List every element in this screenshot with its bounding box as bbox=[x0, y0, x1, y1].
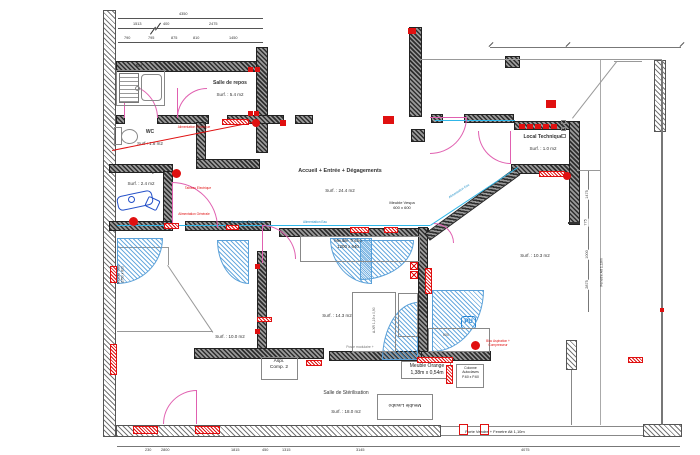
dimension-label: 790 bbox=[123, 36, 131, 41]
power-outlet-marker bbox=[248, 67, 253, 72]
drawing-line bbox=[600, 60, 601, 425]
electrical-note: Alimentation Générale bbox=[172, 212, 216, 216]
wall bbox=[412, 130, 424, 141]
furniture-label: 600 bbox=[438, 333, 454, 338]
drawing-line bbox=[441, 435, 643, 436]
furniture-label: A-XR 1,19 x 0,90 bbox=[372, 292, 376, 348]
radiator-marker bbox=[226, 225, 239, 230]
dimension-label: 1475 bbox=[585, 189, 590, 199]
spot-marker bbox=[172, 169, 181, 178]
radiator-marker bbox=[539, 171, 565, 177]
dimension-tick bbox=[680, 42, 685, 47]
wall bbox=[257, 48, 267, 152]
clearance-hatch bbox=[217, 240, 249, 284]
toilet-bowl-icon bbox=[121, 129, 138, 144]
dimension-label: 4075 bbox=[520, 448, 530, 453]
room-surface-accueil: Surf. : 24.4 m2 bbox=[275, 188, 405, 194]
dimension-label: 1450 bbox=[228, 36, 238, 41]
drawing-line bbox=[572, 61, 617, 118]
dimension-line bbox=[118, 28, 263, 29]
dimension-label: 3145 bbox=[355, 448, 365, 453]
wall bbox=[117, 116, 124, 123]
floor-plan: Salle de repos Surf. : 5.4 m2 WC Surf : … bbox=[0, 0, 700, 455]
power-outlet-marker bbox=[519, 124, 525, 129]
dimension-line bbox=[118, 42, 263, 43]
power-outlet-marker bbox=[255, 329, 260, 334]
drawing-line bbox=[167, 265, 213, 333]
dimension-label: 810 bbox=[192, 36, 200, 41]
dimension-label: 400 bbox=[162, 22, 170, 27]
furniture-label: Porte Vendre + Fenetre Alt 1,10m bbox=[428, 429, 562, 434]
spot-marker bbox=[252, 119, 260, 127]
room-surface-sterilisation: Surf. : 18.0 m2 bbox=[310, 409, 382, 415]
dimension-label: 775 bbox=[584, 218, 589, 226]
furniture-label: Poste modulaire + bbox=[332, 345, 388, 349]
furniture-outline bbox=[561, 127, 566, 131]
wall bbox=[164, 172, 172, 224]
furniture-outline bbox=[561, 120, 566, 124]
power-outlet-marker bbox=[280, 120, 286, 126]
drawing-line bbox=[168, 247, 169, 265]
furniture-label: Fenetre Alt 1,10m bbox=[600, 248, 605, 296]
dimension-label: 1000 bbox=[585, 249, 590, 259]
dimension-label: 1815 bbox=[230, 448, 240, 453]
drawing-line bbox=[490, 47, 681, 48]
power-outlet-marker bbox=[255, 67, 260, 72]
radiator-marker bbox=[306, 360, 322, 366]
drawing-line bbox=[577, 170, 600, 171]
furniture-label: Meuble Tisio 2750 x 600 bbox=[117, 253, 126, 295]
dimension-label: 1513 bbox=[132, 22, 142, 27]
xray-chair-headrest-icon bbox=[144, 196, 160, 211]
furniture-label: Bar bbox=[131, 63, 147, 68]
radiator-marker bbox=[164, 223, 179, 229]
room-surface-left-room: Surf. : 10.0 m2 bbox=[193, 334, 267, 340]
wall bbox=[570, 122, 579, 224]
dimension-label: 1315 bbox=[281, 448, 291, 453]
plumbing-line bbox=[430, 167, 518, 226]
drawing-line bbox=[661, 60, 663, 425]
room-label-accueil: Accueil + Entrée + Dégagements bbox=[255, 168, 425, 175]
drawing-line bbox=[420, 59, 662, 60]
radiator-marker bbox=[257, 317, 272, 322]
furniture-label: Meuble Tricho 1200 x 640 bbox=[322, 238, 374, 249]
power-outlet-marker bbox=[383, 116, 394, 124]
wall bbox=[654, 60, 666, 132]
radiator-marker bbox=[350, 227, 369, 233]
socket-marker bbox=[410, 271, 418, 279]
drawing-line bbox=[441, 426, 643, 427]
furniture-label: Colonne Autoclaves P.60 x P.60 bbox=[457, 366, 484, 379]
dimension-label: 2875 bbox=[585, 279, 590, 289]
room-surface-local-technique: Surf. : 1.0 m2 bbox=[511, 146, 575, 152]
drawing-line bbox=[571, 370, 572, 425]
power-outlet-marker bbox=[535, 124, 541, 129]
room-label-sterilisation: Salle de Stérilisation bbox=[310, 390, 382, 397]
dimension-label: 2800 bbox=[160, 448, 170, 453]
faucet-icon bbox=[135, 86, 140, 91]
sink-basin bbox=[141, 74, 162, 101]
power-outlet-marker bbox=[248, 111, 253, 116]
radiator-marker bbox=[384, 227, 398, 233]
power-outlet-marker bbox=[527, 124, 533, 129]
electrical-note: Alimentation Electrique bbox=[172, 125, 216, 129]
wall bbox=[296, 116, 312, 123]
wall bbox=[195, 349, 323, 358]
door-swing-arc bbox=[434, 223, 454, 243]
door-swing-arc bbox=[177, 88, 207, 118]
radiator-marker bbox=[110, 344, 117, 375]
radiator-marker bbox=[195, 426, 220, 434]
radiator-marker bbox=[222, 119, 249, 125]
wall bbox=[197, 160, 259, 168]
spot-marker bbox=[129, 217, 138, 226]
plumbing-note: Evacuation Eaux Usées bbox=[224, 220, 272, 224]
radiator-marker bbox=[133, 426, 158, 434]
wall bbox=[566, 340, 577, 370]
plumbing-note: Alimentation Eau bbox=[296, 220, 334, 224]
furniture-label: Meuble Lavabo bbox=[378, 401, 432, 407]
door-swing-arc bbox=[478, 131, 511, 164]
socket-marker bbox=[410, 262, 418, 270]
electrical-note: Tableau Electrique bbox=[178, 186, 218, 190]
dimension-label: 795 bbox=[147, 36, 155, 41]
dimension-label: 450 bbox=[261, 448, 269, 453]
radiator-marker bbox=[425, 268, 432, 294]
power-outlet-marker bbox=[660, 308, 664, 312]
dimension-label: 4350 bbox=[178, 12, 188, 17]
wall bbox=[643, 424, 682, 437]
dimension-line bbox=[118, 18, 263, 19]
power-outlet-marker bbox=[551, 124, 557, 129]
furniture-label: Meuble Vespa 600 x 600 bbox=[378, 200, 426, 210]
power-outlet-marker bbox=[255, 264, 260, 269]
dimension-label: 875 bbox=[170, 36, 178, 41]
furniture-outline bbox=[561, 134, 566, 138]
power-outlet-marker bbox=[546, 100, 556, 108]
power-outlet-marker bbox=[543, 124, 549, 129]
spot-marker bbox=[563, 172, 571, 180]
xray-chair-base-icon bbox=[128, 196, 135, 203]
furniture-outline bbox=[398, 293, 418, 337]
wall bbox=[110, 165, 172, 172]
room-surface-right-room: Surf. : 10.3 m2 bbox=[498, 253, 572, 259]
wall bbox=[410, 28, 421, 116]
furniture-label: Aspi. Comp. 2 bbox=[262, 359, 296, 371]
drawing-line bbox=[117, 331, 213, 332]
furniture-label: Meuble Orange 1,38m x 0,54m bbox=[401, 363, 453, 376]
door-swing-arc bbox=[163, 390, 197, 424]
power-outlet-marker bbox=[254, 111, 259, 116]
electrical-note: Bloc Aspiration + Compresseur bbox=[477, 339, 519, 347]
power-outlet-marker bbox=[408, 28, 416, 34]
drawing-line bbox=[117, 446, 680, 447]
drawing-line bbox=[155, 23, 161, 31]
dimension-label: 230 bbox=[144, 448, 152, 453]
drawing-line bbox=[614, 61, 642, 62]
radiator-marker bbox=[628, 357, 643, 363]
dimension-label: 2475 bbox=[208, 22, 218, 27]
drawing-line bbox=[568, 222, 580, 224]
door-swing-arc bbox=[430, 117, 467, 154]
wall bbox=[116, 425, 441, 437]
